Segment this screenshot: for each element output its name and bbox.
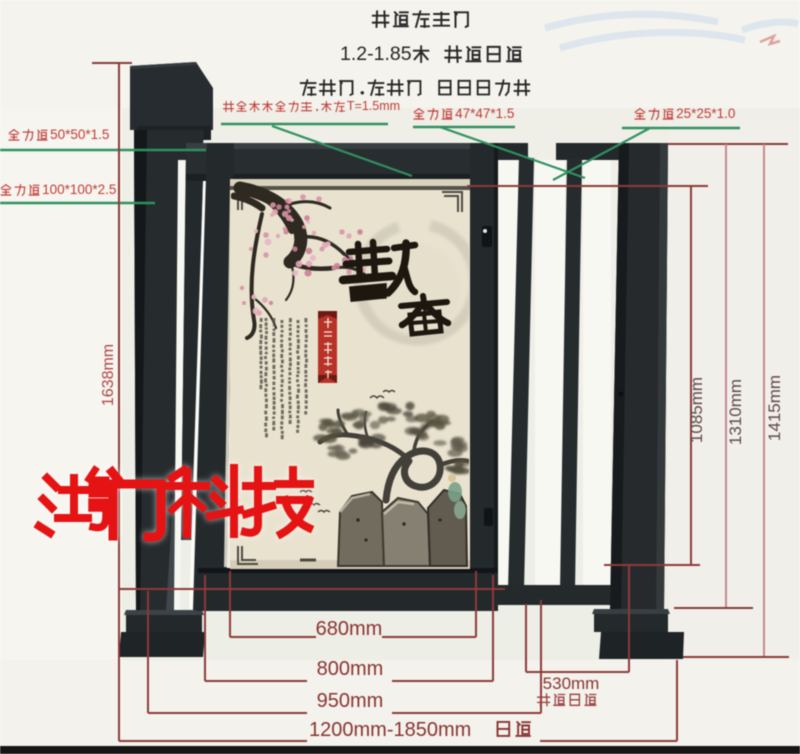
- svg-text:680mm: 680mm: [316, 618, 383, 640]
- svg-text:47*47*1.5: 47*47*1.5: [455, 106, 514, 121]
- svg-text:800mm: 800mm: [317, 658, 384, 680]
- svg-text:950mm: 950mm: [317, 690, 384, 712]
- svg-text:100*100*2.5: 100*100*2.5: [42, 182, 116, 197]
- svg-text:1310mm: 1310mm: [726, 379, 745, 445]
- svg-text:25*25*1.0: 25*25*1.0: [676, 106, 735, 121]
- svg-text:T=1.5mm: T=1.5mm: [347, 99, 400, 113]
- svg-text:1200mm-1850mm: 1200mm-1850mm: [309, 719, 471, 741]
- svg-text:50*50*1.5: 50*50*1.5: [50, 127, 109, 142]
- svg-text:1415mm: 1415mm: [765, 375, 784, 441]
- svg-text:1638mm: 1638mm: [100, 344, 117, 406]
- svg-text:1.2-1.85: 1.2-1.85: [340, 43, 412, 65]
- svg-text:530mm: 530mm: [543, 674, 600, 693]
- svg-text:1085mm: 1085mm: [687, 377, 706, 443]
